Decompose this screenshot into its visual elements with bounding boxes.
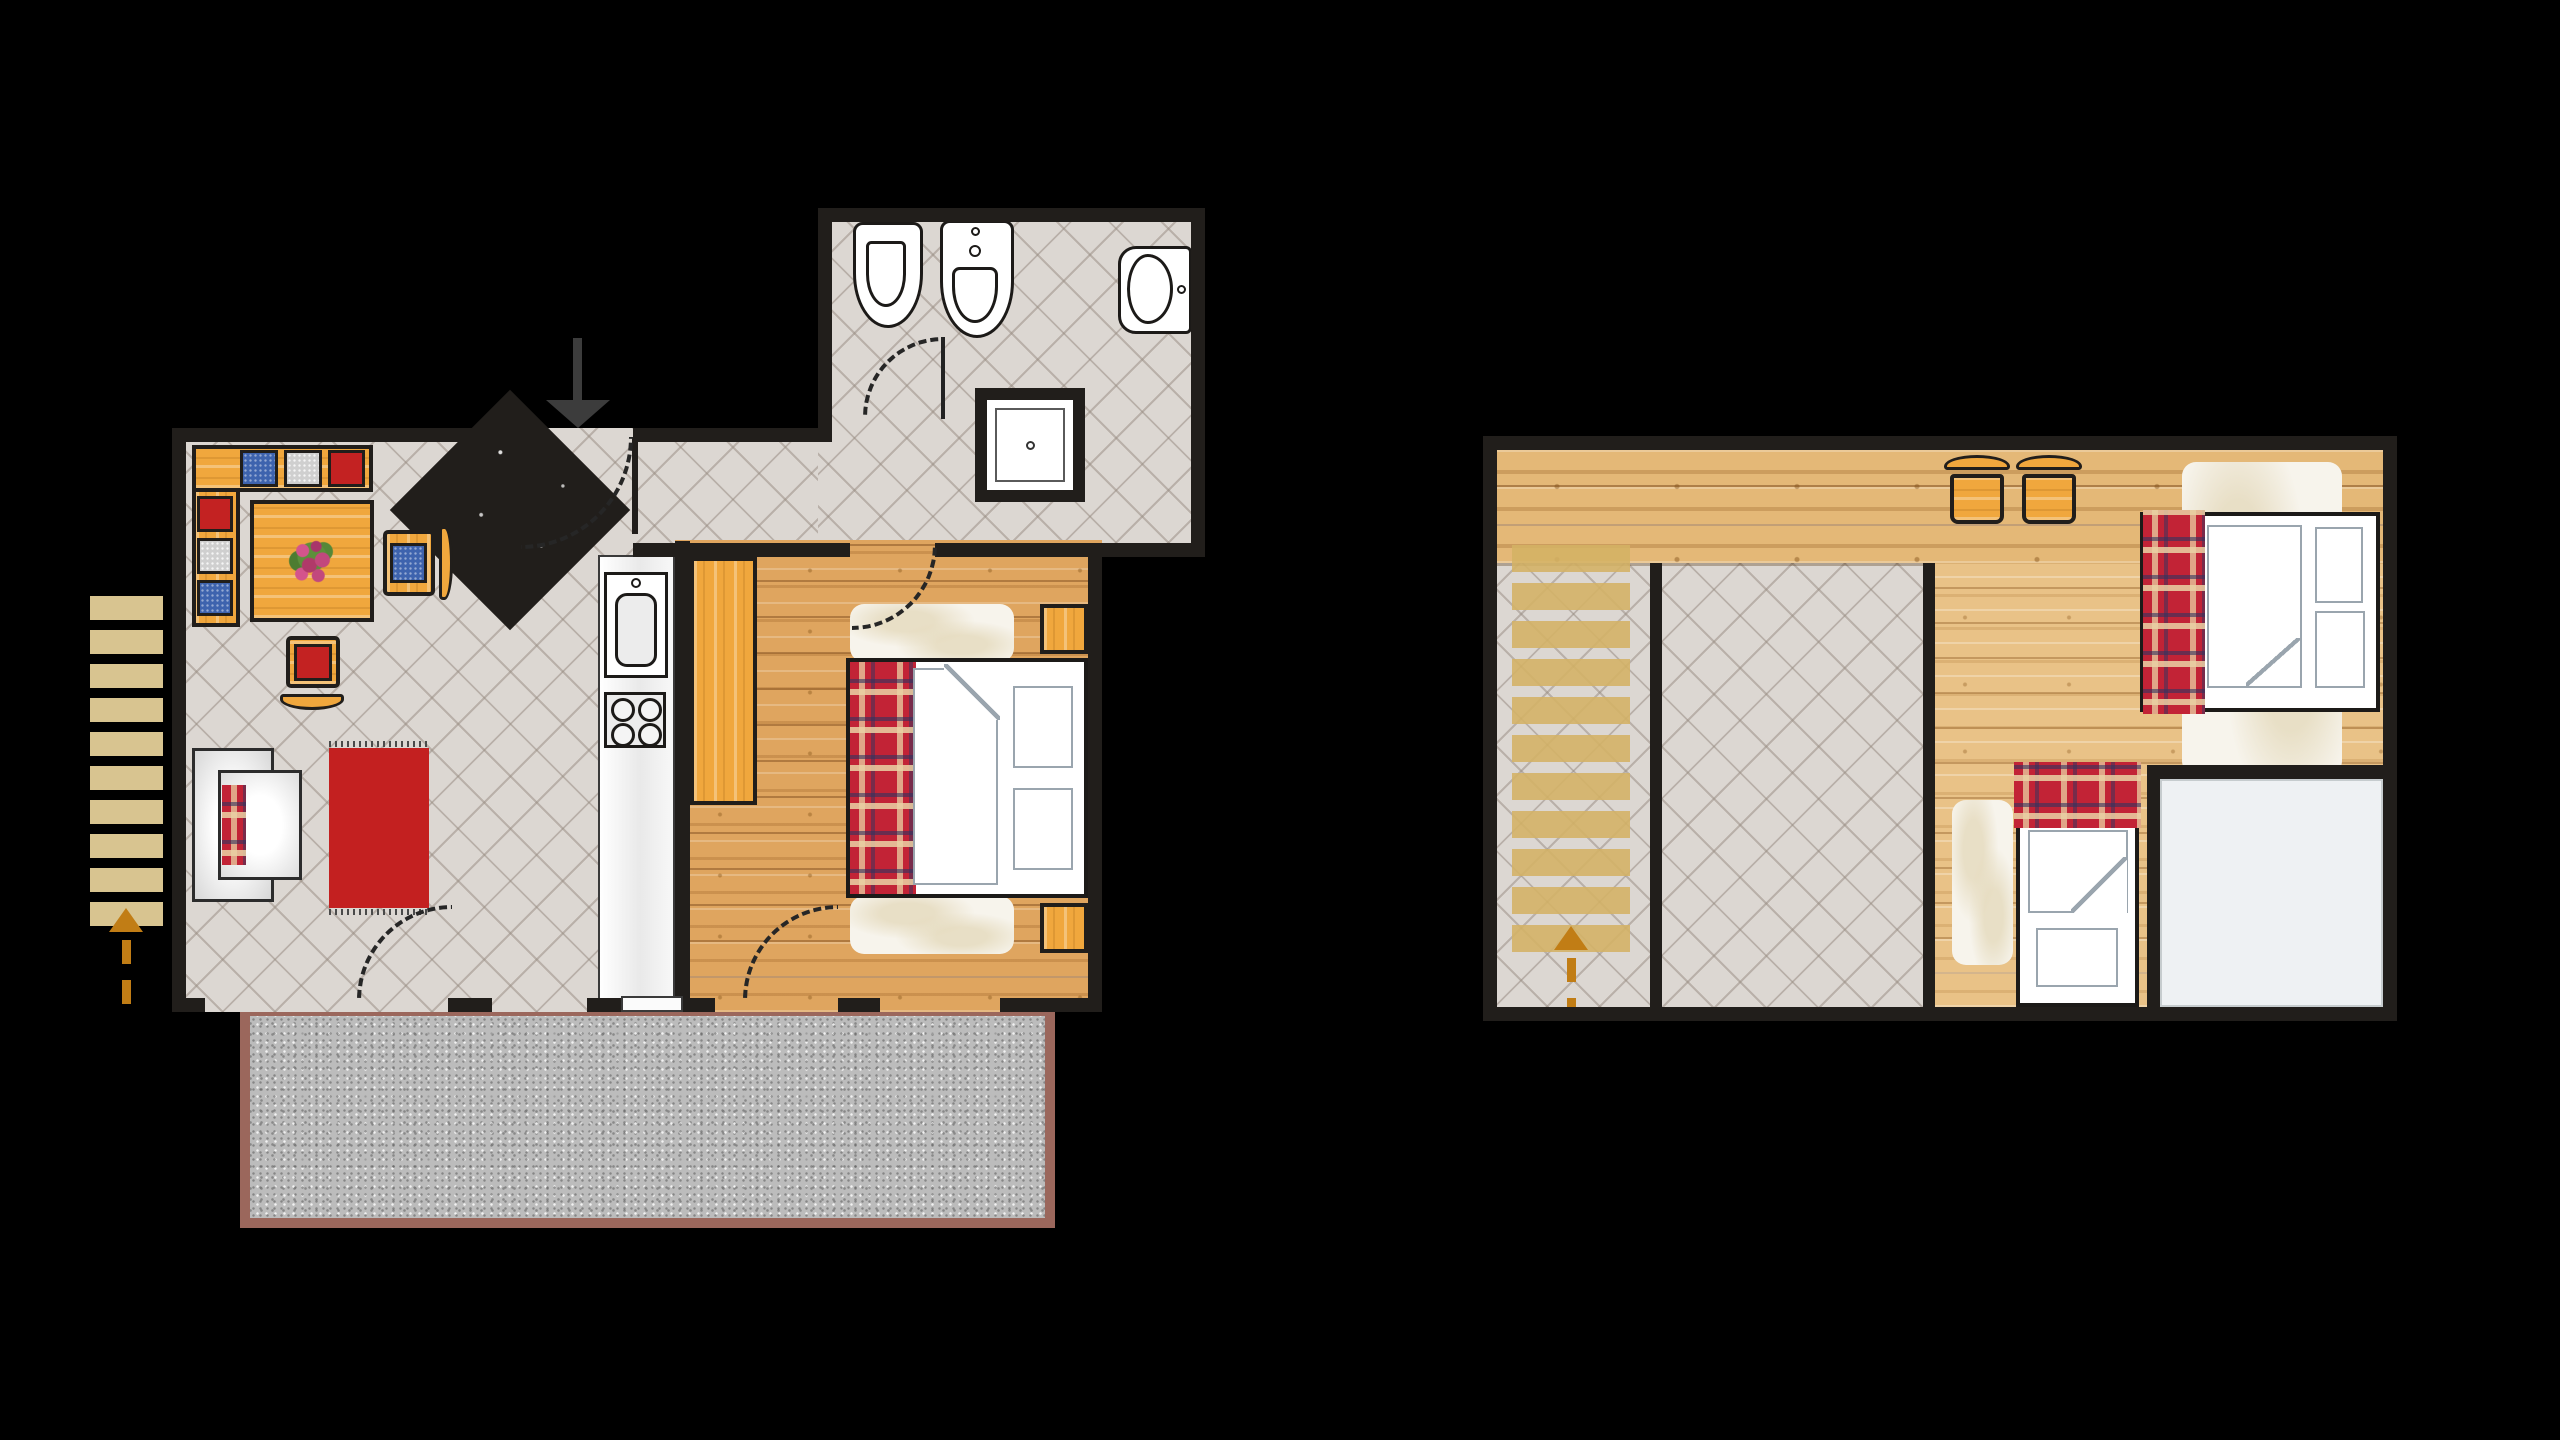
stair-step xyxy=(90,698,163,722)
cooktop xyxy=(604,692,666,748)
shower xyxy=(975,388,1085,502)
burner-icon xyxy=(638,723,662,747)
wall xyxy=(633,543,850,557)
kitchen-threshold xyxy=(621,996,683,1012)
wall xyxy=(818,208,832,442)
red-rug xyxy=(329,748,429,908)
door-swing-arc xyxy=(852,545,937,630)
nightstand xyxy=(1040,604,1088,654)
stair-step xyxy=(90,834,163,858)
basin xyxy=(952,267,998,323)
wall xyxy=(587,998,621,1012)
wall xyxy=(448,998,492,1012)
wall xyxy=(675,541,690,1012)
entrance-arrow-icon xyxy=(573,338,582,402)
toilet xyxy=(1118,246,1192,334)
wall xyxy=(1088,543,1102,1012)
burner-icon xyxy=(638,698,662,722)
stair-step xyxy=(90,630,163,654)
stairs-up-arrow-icon xyxy=(109,908,143,932)
bidet xyxy=(853,222,923,328)
bench-cushion xyxy=(240,450,278,487)
drain-icon xyxy=(1026,441,1035,450)
faucet-icon xyxy=(631,578,641,588)
faucet-icon xyxy=(971,227,980,236)
door-swing-arc xyxy=(863,337,943,417)
entrance-arrowhead-icon xyxy=(546,400,610,428)
stair-step xyxy=(90,868,163,892)
wall xyxy=(683,998,715,1012)
sofa-plaid-blanket xyxy=(222,785,246,865)
bed-plaid-blanket xyxy=(850,662,916,894)
washbasin xyxy=(940,220,1014,338)
outer-wall xyxy=(1483,436,2397,1021)
stairs-arrow-shaft xyxy=(122,940,131,1006)
bench-cushion xyxy=(328,450,365,487)
hallway-floor xyxy=(633,428,833,555)
faucet-icon xyxy=(969,245,981,257)
door-swing-arc xyxy=(521,437,633,549)
burner-icon xyxy=(611,698,635,722)
bench-cushion xyxy=(197,496,233,532)
bidet-basin xyxy=(866,241,906,307)
wall xyxy=(1000,998,1102,1012)
stair-step xyxy=(90,766,163,790)
floorplan-image xyxy=(0,0,2560,1440)
wall xyxy=(633,428,830,442)
flush-button-icon xyxy=(1177,285,1186,294)
wardrobe xyxy=(690,557,757,805)
sink-basin xyxy=(615,593,657,667)
bench-cushion xyxy=(197,538,233,574)
wall xyxy=(172,428,186,1012)
rug-fringe xyxy=(329,741,429,747)
bench-cushion xyxy=(197,580,233,616)
fur-rug xyxy=(850,896,1014,954)
chair-cushion xyxy=(294,644,332,681)
chair-cushion xyxy=(390,543,427,583)
wall xyxy=(935,543,1088,557)
door-swing-arc xyxy=(743,905,838,1000)
wall xyxy=(838,998,880,1012)
wall xyxy=(1191,208,1205,557)
stair-step xyxy=(90,732,163,756)
bench-cushion xyxy=(284,450,322,487)
toilet-bowl xyxy=(1127,254,1173,324)
wall xyxy=(172,998,205,1012)
nightstand xyxy=(1040,903,1088,953)
wall xyxy=(818,208,1205,222)
door-swing-arc xyxy=(357,905,452,1000)
wall xyxy=(1088,543,1205,557)
stair-step xyxy=(90,800,163,824)
pillow xyxy=(1013,686,1073,768)
stair-step xyxy=(90,596,163,620)
pillow xyxy=(1013,788,1073,870)
burner-icon xyxy=(611,723,635,747)
flower-centerpiece xyxy=(286,535,338,587)
kitchen-sink-unit xyxy=(604,572,668,678)
terrace xyxy=(240,1006,1055,1228)
duvet-fold xyxy=(944,664,1000,720)
wall xyxy=(172,428,534,442)
stair-step xyxy=(90,664,163,688)
